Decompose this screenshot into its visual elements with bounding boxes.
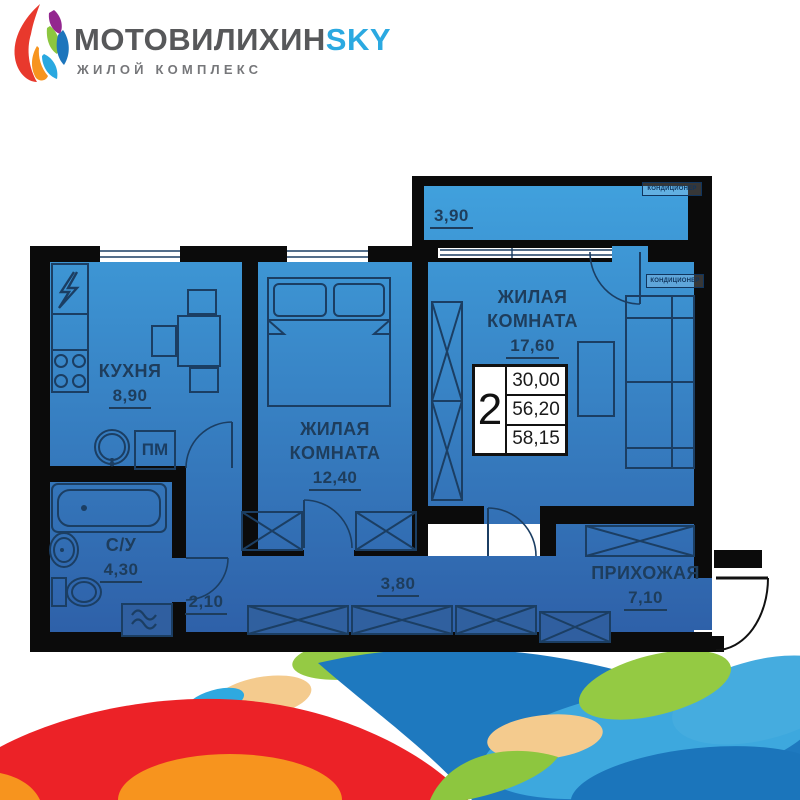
room-area-hall-small: 2,10	[185, 591, 228, 615]
room-label-bathroom: С/У 4,30	[66, 534, 176, 583]
wall-right-upper	[694, 248, 712, 578]
wall-bedroom-living	[412, 246, 428, 556]
apartment-info-box: 2 30,00 56,20 58,15	[472, 364, 568, 456]
wall-top	[30, 246, 428, 262]
wave-shapes	[0, 645, 800, 800]
wall-stub-entrance-bottom	[712, 636, 724, 652]
room-name-entry: ПРИХОЖАЯ	[573, 562, 718, 586]
room-label-living: ЖИЛАЯ КОМНАТА 17,60	[450, 286, 615, 359]
wall-entry-stub	[540, 524, 556, 556]
wall-living-bottom-left	[428, 506, 484, 524]
living-area-value: 30,00	[507, 367, 565, 396]
wall-bottom	[30, 632, 712, 652]
rooms-count: 2	[475, 367, 505, 453]
room-floor-bedroom	[258, 262, 412, 556]
room-name-bathroom: С/У	[66, 534, 176, 558]
room-label-corridor: 3,80	[358, 572, 438, 597]
window-balcony	[438, 248, 612, 258]
room-area-corridor: 3,80	[377, 573, 420, 597]
air-conditioner-label-room: КОНДИЦИОНЕР	[646, 274, 704, 288]
wall-entry-top	[540, 506, 694, 524]
logo-subtitle: ЖИЛОЙ КОМПЛЕКС	[77, 62, 262, 77]
wall-kitchen-bedroom	[242, 246, 258, 556]
room-area-kitchen: 8,90	[109, 385, 152, 409]
wardrobe-base-right	[354, 550, 416, 556]
room-name-living-line2: КОМНАТА	[450, 310, 615, 334]
room-name-kitchen: КУХНЯ	[60, 360, 200, 384]
dishwasher-label: ПМ	[142, 440, 168, 460]
room-label-entry: ПРИХОЖАЯ 7,10	[573, 562, 718, 611]
room-label-balcony: 3,90	[430, 204, 490, 229]
logo-title-accent: SKY	[326, 22, 391, 57]
room-name-bedroom-line1: ЖИЛАЯ	[255, 418, 415, 442]
logo-flame-icon	[6, 2, 72, 86]
wardrobe-base-left	[242, 550, 304, 556]
logo-title: МОТОВИЛИХИНSKY	[74, 22, 391, 58]
area-value: 56,20	[507, 396, 565, 425]
flame-leaf-blue	[57, 30, 69, 65]
room-label-hall-small: 2,10	[175, 590, 237, 615]
dishwasher-box: ПМ	[134, 430, 176, 470]
window-kitchen	[100, 246, 180, 262]
window-bedroom	[287, 246, 368, 262]
total-area-value: 58,15	[507, 426, 565, 453]
room-area-living: 17,60	[506, 335, 559, 359]
room-area-entry: 7,10	[624, 587, 667, 611]
air-conditioner-label-balcony: КОНДИЦИОНЕР	[642, 182, 702, 196]
wall-stub-entrance-top	[714, 550, 762, 568]
door-opening-balcony	[612, 246, 648, 262]
room-area-bedroom: 12,40	[309, 467, 362, 491]
wall-left	[30, 246, 50, 652]
room-area-bathroom: 4,30	[100, 559, 143, 583]
room-label-kitchen: КУХНЯ 8,90	[60, 360, 200, 409]
room-name-bedroom-line2: КОМНАТА	[255, 442, 415, 466]
logo-title-main: МОТОВИЛИХИН	[74, 22, 326, 57]
door-opening-living	[484, 506, 540, 524]
room-label-bedroom: ЖИЛАЯ КОМНАТА 12,40	[255, 418, 415, 491]
room-name-living-line1: ЖИЛАЯ	[450, 286, 615, 310]
room-area-balcony: 3,90	[430, 205, 473, 229]
info-values: 30,00 56,20 58,15	[505, 367, 565, 453]
waves-decoration	[0, 645, 800, 800]
